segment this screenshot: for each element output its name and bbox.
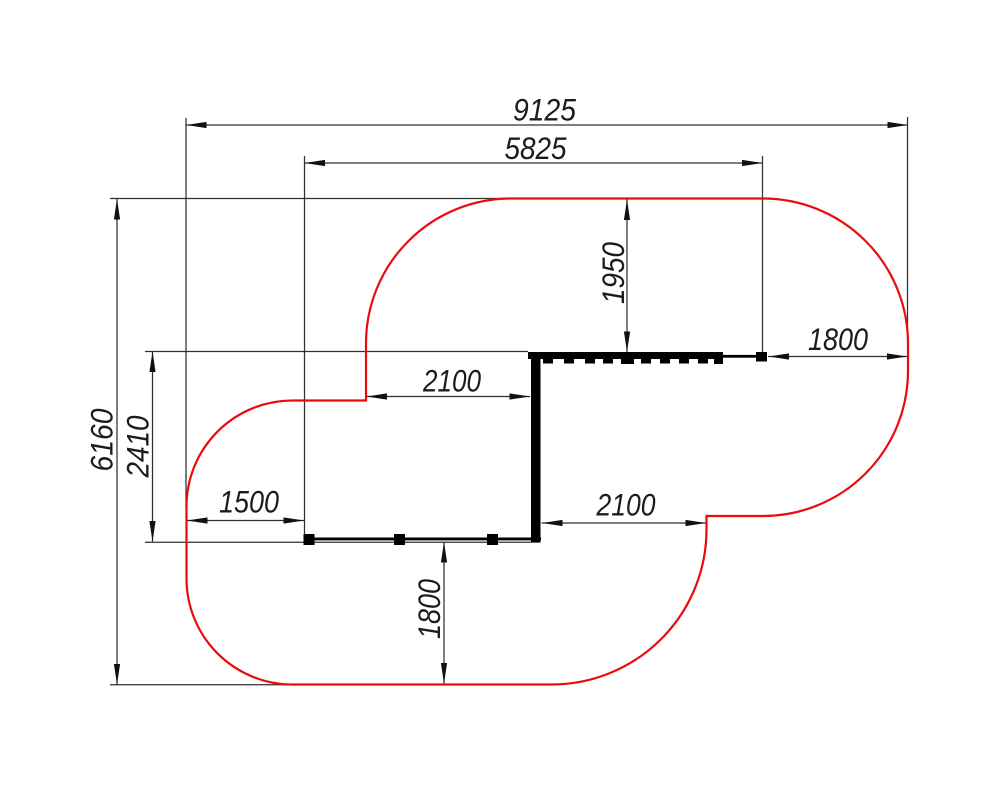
- svg-text:2410: 2410: [120, 415, 156, 478]
- svg-text:2100: 2100: [596, 487, 656, 523]
- svg-text:9125: 9125: [513, 92, 576, 128]
- svg-text:1500: 1500: [219, 484, 279, 520]
- svg-text:1800: 1800: [808, 321, 868, 357]
- svg-text:1950: 1950: [595, 242, 631, 304]
- svg-text:5825: 5825: [505, 130, 567, 166]
- svg-text:6160: 6160: [84, 408, 120, 471]
- svg-text:2100: 2100: [422, 363, 481, 399]
- svg-text:1800: 1800: [411, 579, 447, 639]
